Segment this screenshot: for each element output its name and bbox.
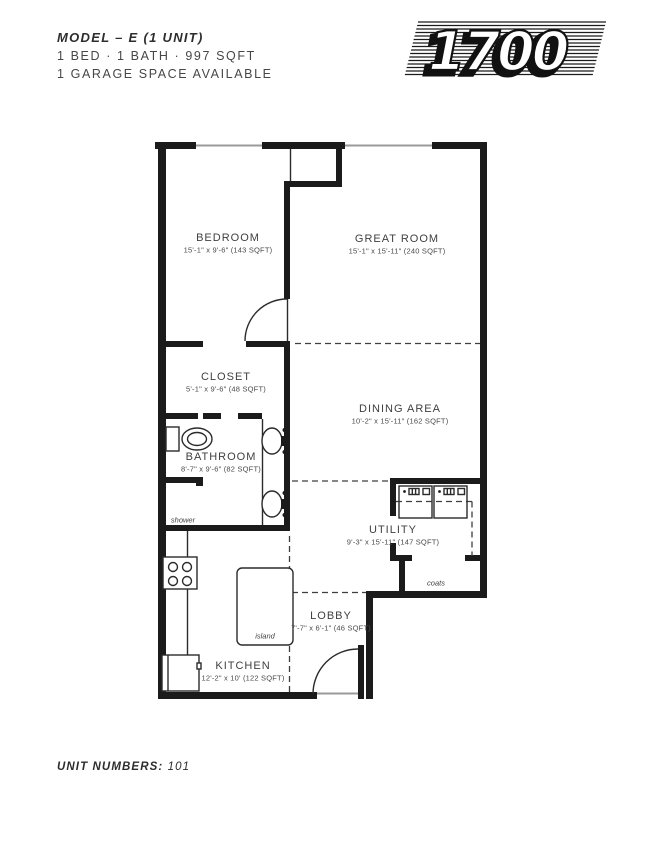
wall-lobby-right — [366, 591, 373, 699]
chase-bottom — [288, 181, 342, 187]
wall-closet-south-1 — [160, 413, 198, 419]
wall-bedroom-south-right — [246, 341, 287, 347]
entry-door-leaf — [358, 645, 364, 699]
wall-bottom — [158, 692, 317, 699]
kitchen-dims: 12'-2" x 10' (122 SQFT) — [201, 674, 284, 683]
wall-right — [480, 142, 487, 598]
wall-closet-south-2 — [203, 413, 221, 419]
unit-numbers: UNIT NUMBERS: 101 — [57, 761, 190, 773]
wall-bathroom-south — [160, 525, 290, 531]
great-room-dims: 15'-1" x 15'-11" (240 SQFT) — [349, 247, 446, 256]
floor-plan-drawing — [0, 0, 652, 844]
wall-bedroom-south-left — [160, 341, 203, 347]
unit-numbers-value: 101 — [168, 761, 191, 773]
bedroom-dims: 15'-1" x 9'-6" (143 SQFT) — [184, 246, 273, 255]
wall-utility-west-upper — [390, 478, 396, 516]
bedroom-label: BEDROOM — [196, 232, 260, 244]
unit-numbers-label: UNIT NUMBERS: — [57, 761, 163, 773]
floor-plan-page: MODEL – E (1 UNIT) 1 BED · 1 BATH · 997 … — [0, 0, 652, 844]
utility-dims: 9'-3" x 15'-11" (147 SQFT) — [347, 538, 439, 547]
lobby-label: LOBBY — [310, 610, 352, 622]
stove-icon — [163, 557, 197, 589]
wall-divider-upper — [284, 181, 290, 299]
sink-icon-1 — [262, 428, 288, 454]
bathroom-dims: 8'-7" x 9'-6" (82 SQFT) — [181, 465, 261, 474]
wall-coats-tick-left — [396, 555, 412, 561]
wall-closet-south-3 — [238, 413, 262, 419]
wall-top-mid — [262, 142, 345, 149]
kitchen-label: KITCHEN — [215, 660, 270, 672]
utility-label: UTILITY — [369, 524, 417, 536]
chase-right — [336, 149, 342, 187]
wall-coats-west — [399, 561, 405, 592]
toilet-icon — [166, 427, 212, 451]
lobby-dims: 7'-7" x 6'-1" (46 SQFT) — [291, 624, 371, 633]
dining-area-dims: 10'-2" x 15'-11" (162 SQFT) — [352, 417, 449, 426]
closet-label: CLOSET — [201, 371, 251, 383]
shower-label: shower — [171, 516, 195, 525]
sink-icon-2 — [262, 491, 288, 517]
island-label: island — [255, 632, 275, 641]
wall-left — [158, 142, 166, 699]
great-room-label: GREAT ROOM — [355, 233, 439, 245]
wall-top-right — [432, 142, 487, 149]
entry-door-arc — [313, 649, 358, 694]
dining-area-label: DINING AREA — [359, 403, 441, 415]
fridge-icon — [162, 655, 201, 691]
coats-label: coats — [427, 579, 445, 588]
wall-utility-north — [390, 478, 487, 484]
wall-shower-tick — [196, 477, 203, 486]
bedroom-door-arc — [245, 299, 287, 341]
wall-bottom-right-section — [366, 591, 487, 598]
bathroom-label: BATHROOM — [186, 451, 257, 463]
closet-dims: 5'-1" x 9'-6" (48 SQFT) — [186, 385, 266, 394]
